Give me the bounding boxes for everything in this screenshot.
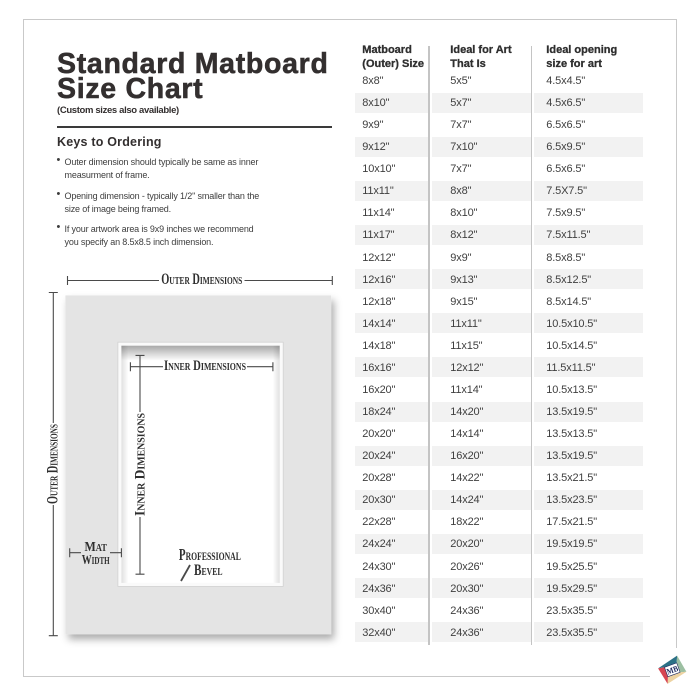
svg-text:Inner Dimensions: Inner Dimensions bbox=[132, 413, 148, 516]
svg-text:Outer Dimensions: Outer Dimensions bbox=[161, 271, 242, 288]
svg-text:Outer Dimensions: Outer Dimensions bbox=[45, 424, 62, 504]
svg-text:Bevel: Bevel bbox=[194, 562, 223, 579]
svg-text:Inner Dimensions: Inner Dimensions bbox=[164, 358, 246, 374]
svg-text:Width: Width bbox=[82, 553, 110, 568]
